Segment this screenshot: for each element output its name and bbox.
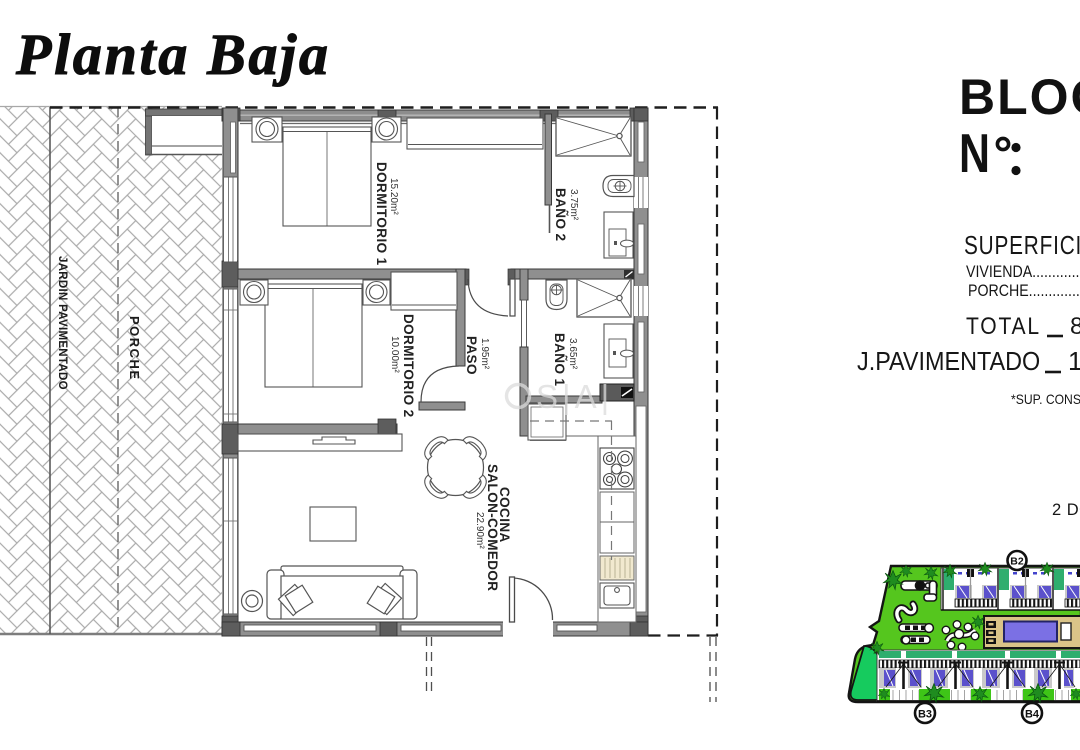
svg-text:SALON-COMEDOR: SALON-COMEDOR bbox=[485, 464, 500, 591]
svg-text:PORCHE: PORCHE bbox=[127, 316, 142, 381]
svg-text:1: 1 bbox=[1068, 346, 1080, 376]
svg-text:PASO: PASO bbox=[464, 336, 479, 375]
svg-text:10.00m²: 10.00m² bbox=[389, 336, 400, 373]
svg-text:22.90m²: 22.90m² bbox=[474, 512, 485, 549]
svg-text:PORCHE........................: PORCHE................................. bbox=[968, 282, 1080, 300]
svg-text:DORMITORIO 1: DORMITORIO 1 bbox=[374, 162, 389, 266]
svg-text:J.PAVIMENTADO: J.PAVIMENTADO bbox=[857, 348, 1040, 376]
svg-text:*SUP. CONST: *SUP. CONST bbox=[1011, 391, 1080, 407]
svg-text:B4: B4 bbox=[1025, 709, 1040, 721]
svg-text:8: 8 bbox=[1070, 313, 1080, 340]
svg-text:2 DOR: 2 DOR bbox=[1052, 501, 1080, 519]
svg-text:SUPERFICIES: SUPERFICIES bbox=[964, 231, 1080, 260]
svg-text:15.20m²: 15.20m² bbox=[388, 178, 399, 215]
svg-text:DORMITORIO 2: DORMITORIO 2 bbox=[401, 314, 416, 418]
svg-text:JARDIN PAVIMENTADO: JARDIN PAVIMENTADO bbox=[56, 256, 68, 390]
svg-text:VIVIENDA......................: VIVIENDA............................... bbox=[966, 263, 1080, 281]
svg-text:N: N bbox=[959, 123, 990, 184]
svg-text:Planta Baja: Planta Baja bbox=[15, 22, 328, 87]
svg-text:3.65m²: 3.65m² bbox=[567, 338, 578, 370]
svg-text:BAÑO 2: BAÑO 2 bbox=[553, 188, 568, 241]
svg-text:B2: B2 bbox=[1010, 556, 1024, 568]
svg-text:S|A|: S|A| bbox=[536, 378, 613, 415]
svg-text:B3: B3 bbox=[918, 709, 932, 721]
svg-text:TOTAL: TOTAL bbox=[966, 313, 1041, 340]
svg-text:BLOQ: BLOQ bbox=[959, 69, 1080, 125]
svg-text:1.95m²: 1.95m² bbox=[479, 338, 490, 370]
svg-text:3.75m²: 3.75m² bbox=[568, 189, 579, 221]
